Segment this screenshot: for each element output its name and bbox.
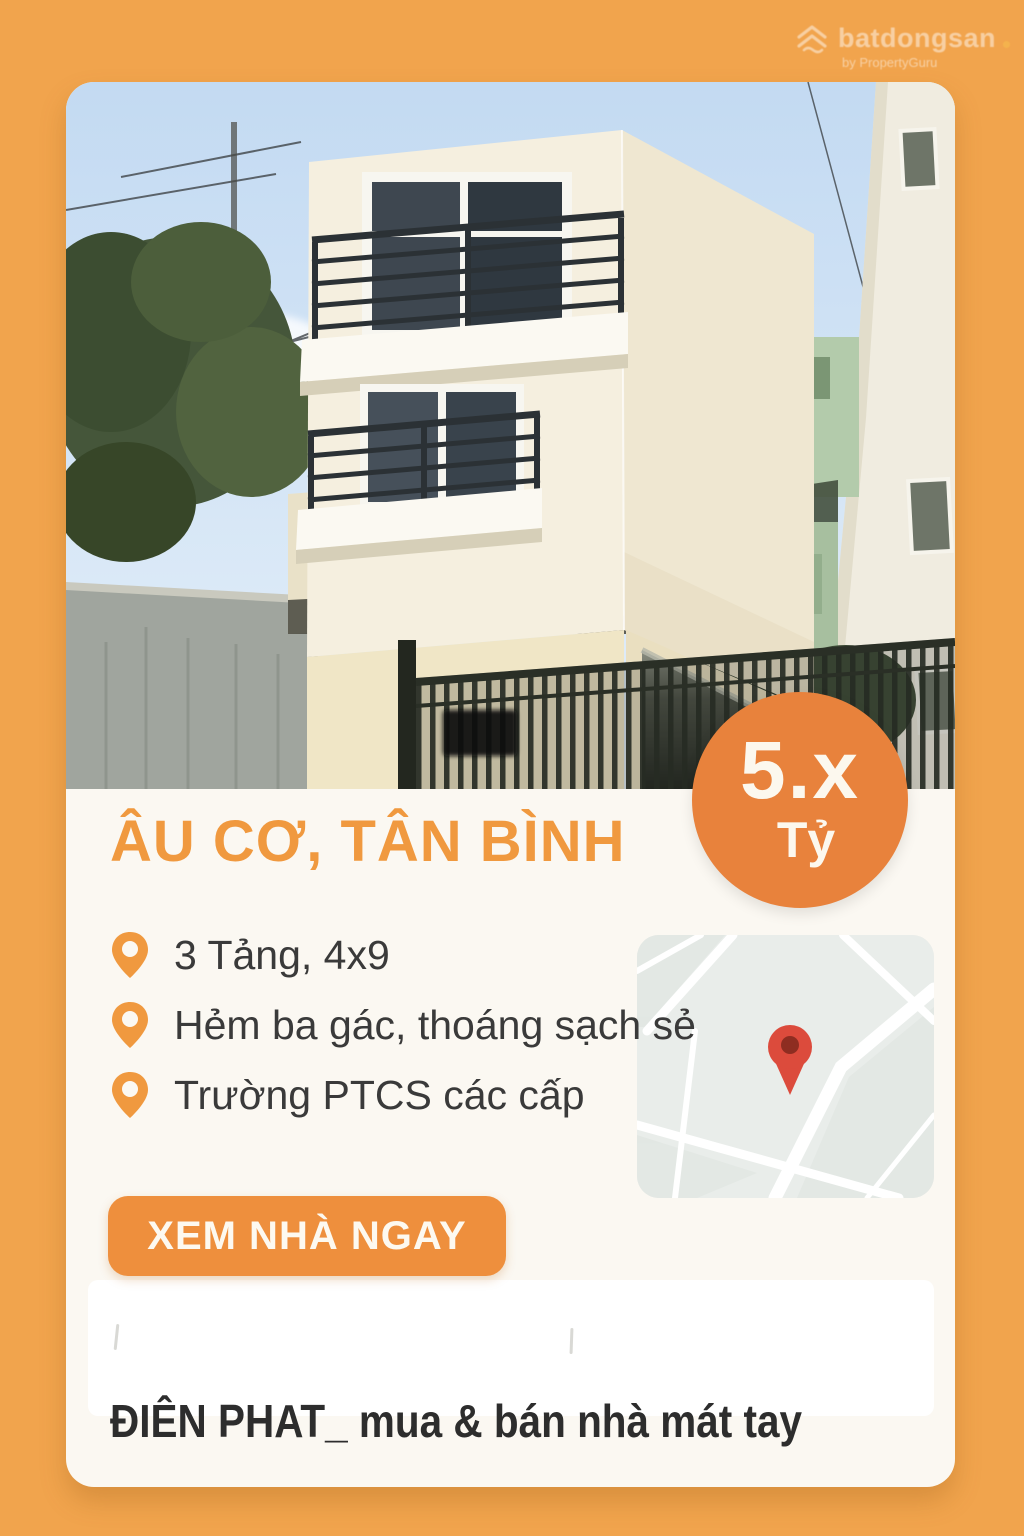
cta-button[interactable]: XEM NHÀ NGAY [108, 1196, 506, 1276]
brand-name: batdongsan [838, 23, 996, 54]
location-pin-icon [110, 930, 150, 980]
location-pin-icon [110, 1070, 150, 1120]
price-badge: 5.x Tỷ [692, 692, 908, 908]
feature-item: Hẻm ba gác, thoáng sạch sẻ [110, 998, 696, 1052]
property-photo [66, 82, 955, 789]
feature-label: Trường PTCS các cấp [174, 1072, 585, 1119]
feature-list: 3 Tảng, 4x9 Hẻm ba gác, thoáng sạch sẻ T… [110, 928, 696, 1122]
brand-house-icon [795, 22, 831, 54]
feature-label: 3 Tảng, 4x9 [174, 932, 390, 979]
brand-watermark: batdongsan by PropertyGuru [795, 22, 1010, 70]
feature-item: Trường PTCS các cấp [110, 1068, 696, 1122]
erased-mark [570, 1328, 574, 1354]
brand-dot [1003, 41, 1010, 48]
brand-byline: by PropertyGuru [842, 55, 1010, 70]
listing-title: ÂU CƠ, TÂN BÌNH [110, 808, 626, 875]
cta-label: XEM NHÀ NGAY [147, 1214, 466, 1259]
price-unit: Tỷ [777, 811, 835, 869]
listing-card: 5.x Tỷ ÂU CƠ, TÂN BÌNH 3 Tảng, 4x9 Hẻm b… [66, 82, 955, 1487]
location-pin-icon [110, 1000, 150, 1050]
feature-item: 3 Tảng, 4x9 [110, 928, 696, 982]
feature-label: Hẻm ba gác, thoáng sạch sẻ [174, 1002, 696, 1049]
ad-background: { "watermark": { "brand": "batdongsan", … [0, 0, 1024, 1536]
price-value: 5.x [740, 731, 860, 811]
erased-mark [114, 1324, 120, 1350]
agent-tagline: ĐIÊN PHAT_ mua & bán nhà mát tay [110, 1394, 802, 1448]
